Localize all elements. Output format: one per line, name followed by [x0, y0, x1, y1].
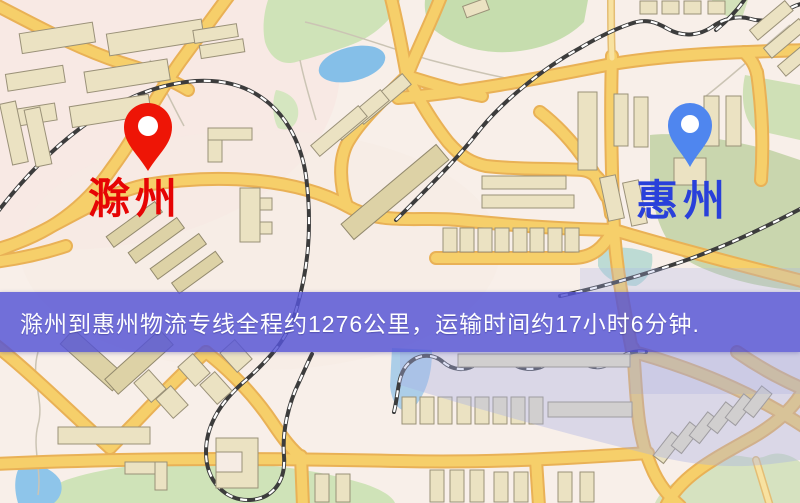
destination-city-label: 惠州	[636, 180, 730, 222]
origin-city-label: 滁州	[88, 178, 182, 220]
origin-pin-hole	[138, 116, 158, 136]
route-info-banner: 滁州到惠州物流专线全程约1276公里，运输时间约17小时6分钟.	[0, 292, 800, 352]
destination-pin-hole	[681, 115, 699, 133]
map-image	[0, 0, 800, 503]
route-info-text: 滁州到惠州物流专线全程约1276公里，运输时间约17小时6分钟.	[0, 305, 700, 339]
map-screenshot: 滁州 惠州 滁州到惠州物流专线全程约1276公里，运输时间约17小时6分钟.	[0, 0, 800, 503]
